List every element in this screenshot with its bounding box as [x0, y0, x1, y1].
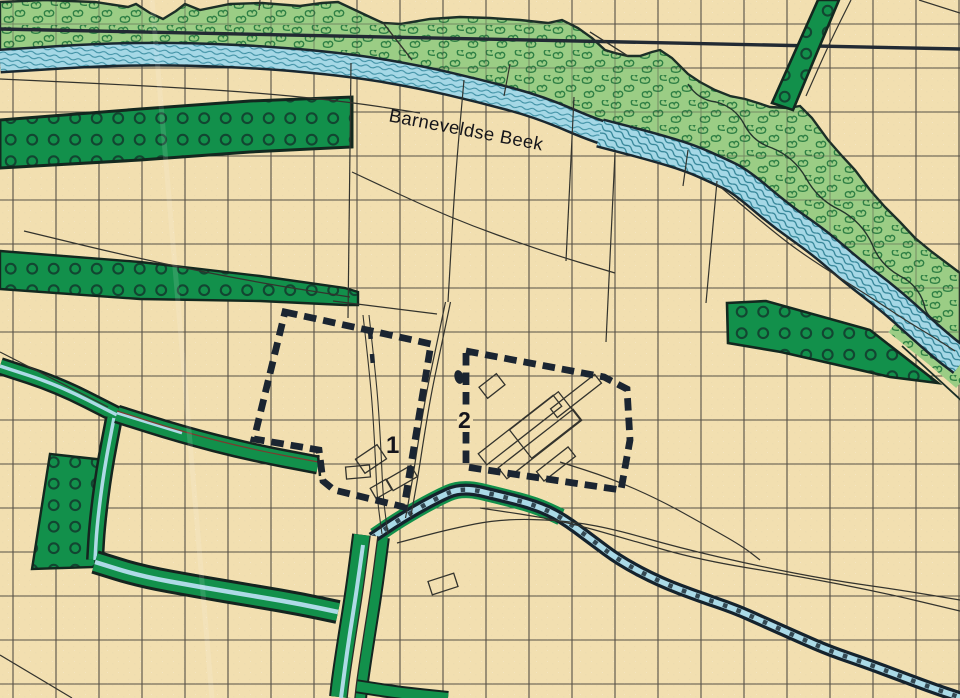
- svg-text:1: 1: [386, 432, 399, 459]
- svg-text:2: 2: [458, 407, 471, 433]
